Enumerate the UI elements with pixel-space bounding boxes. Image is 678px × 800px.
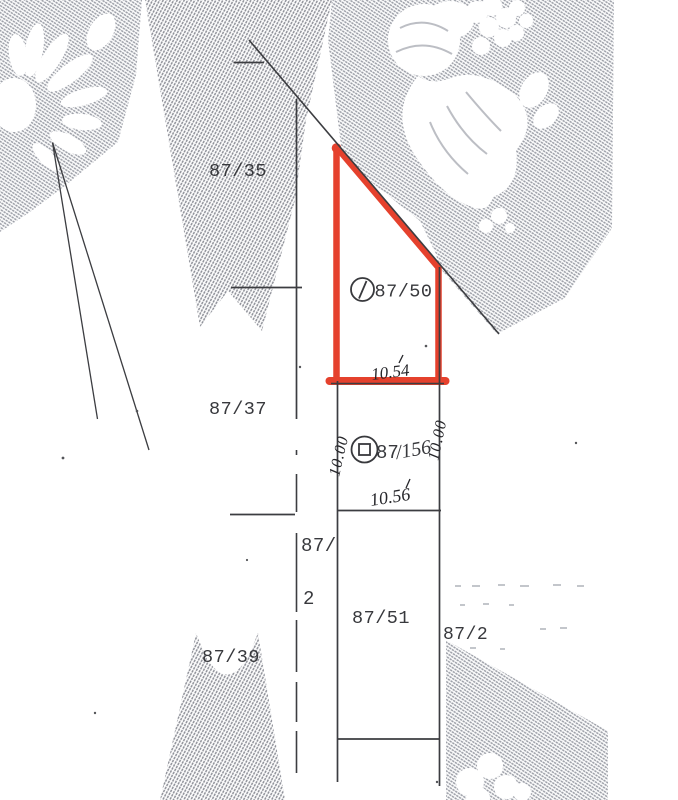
svg-text:87/35: 87/35	[209, 161, 267, 182]
svg-text:87/37: 87/37	[209, 399, 267, 420]
svg-text:87/50: 87/50	[375, 282, 433, 303]
svg-text:87/39: 87/39	[202, 647, 260, 668]
svg-text:87/51: 87/51	[352, 608, 410, 629]
svg-text:87/: 87/	[301, 535, 337, 557]
svg-text:87/2: 87/2	[443, 625, 488, 645]
svg-text:2: 2	[303, 588, 314, 610]
